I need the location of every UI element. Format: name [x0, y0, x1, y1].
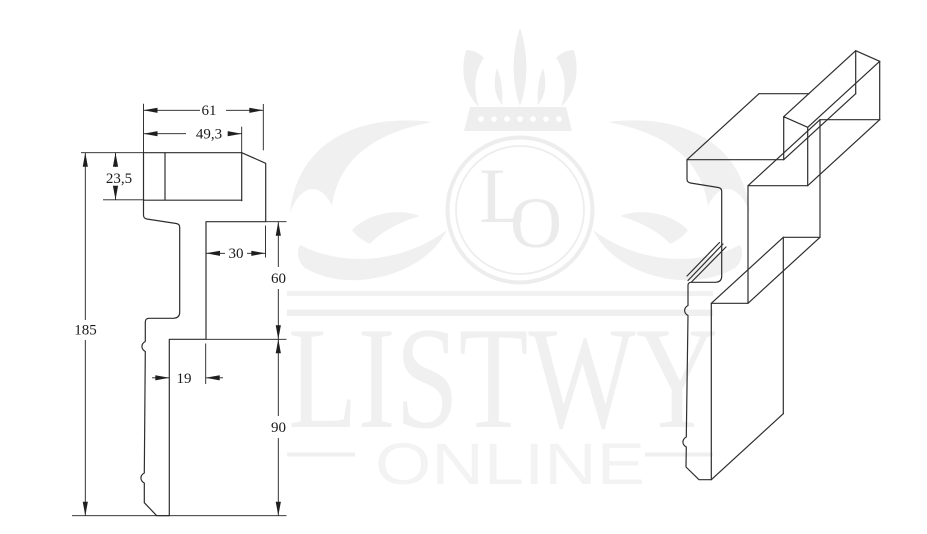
dim-label-61: 61 — [202, 103, 217, 119]
watermark: LISTWY ONLINE L O — [287, 28, 750, 497]
watermark-dash-left — [287, 453, 355, 457]
profile-2d-view: 185 23,5 61 49,3 30 — [72, 103, 287, 516]
logo-crown-icon — [463, 28, 576, 131]
technical-drawing: LISTWY ONLINE L O — [0, 0, 927, 534]
dim-label-60: 60 — [271, 271, 286, 287]
dim-label-49-3: 49,3 — [196, 127, 222, 143]
dim-label-30: 30 — [229, 246, 244, 262]
logo-left-flourish-icon — [290, 120, 447, 280]
dim-label-185: 185 — [74, 323, 97, 339]
logo-right-flourish-icon — [593, 120, 750, 280]
dimension-nose-height: 60 — [271, 222, 286, 340]
dimension-cap-width: 49,3 — [144, 127, 242, 143]
dimension-lower-height: 90 — [271, 339, 286, 515]
dimension-total-width: 61 — [144, 103, 264, 119]
drawing-canvas: LISTWY ONLINE L O — [0, 0, 927, 534]
watermark-tagline-text: ONLINE — [375, 432, 645, 497]
end-face-edges — [759, 51, 880, 414]
watermark-logo: L O — [290, 28, 750, 283]
watermark-dash-right — [645, 453, 713, 457]
watermark-rule-top — [287, 291, 713, 296]
dim-label-19: 19 — [177, 371, 192, 387]
dim-label-23-5: 23,5 — [106, 171, 132, 187]
dim-label-90: 90 — [271, 420, 286, 436]
dimension-web-thickness: 19 — [152, 371, 223, 387]
dimension-cap-height: 23,5 — [106, 153, 132, 200]
dimension-total-height: 185 — [74, 153, 97, 516]
dimension-nose-depth: 30 — [206, 246, 265, 262]
logo-monogram-o: O — [510, 183, 562, 263]
profile-outline — [141, 153, 266, 516]
